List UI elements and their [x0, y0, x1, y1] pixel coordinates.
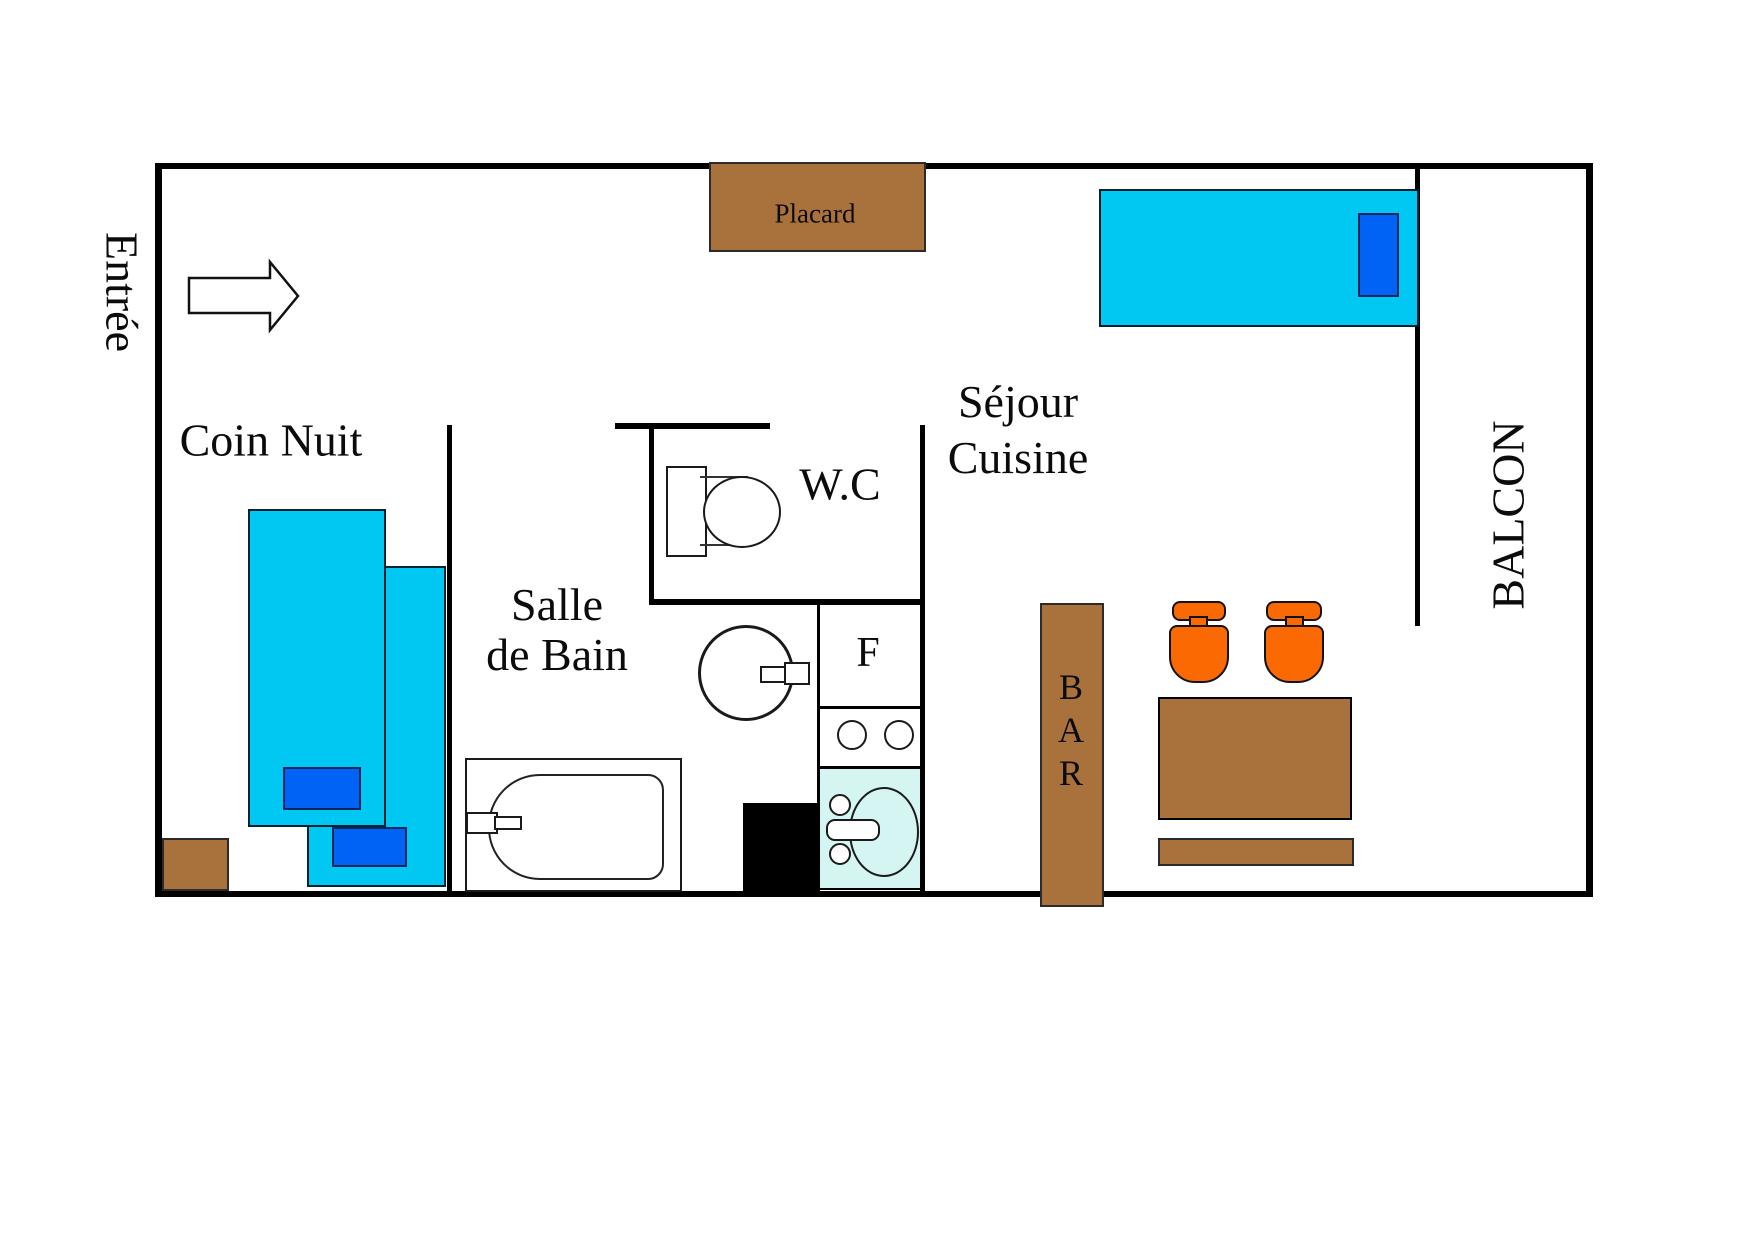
label-wc: W.C — [799, 458, 880, 511]
wall-wc-bottom — [649, 599, 925, 605]
sejour-bed-pillow — [1358, 213, 1399, 297]
floor-plan: BAR Entrée Coin Nuit Salle de Bain W.C S… — [0, 0, 1754, 1240]
kitchen-sink-faucet — [826, 819, 880, 841]
cooktop-burner-left — [837, 720, 867, 750]
cooktop-burner-right — [884, 720, 914, 750]
bar-label: BAR — [1052, 666, 1090, 795]
wall-wc-top — [615, 423, 770, 429]
label-salle-de-bain-line2: de Bain — [486, 630, 628, 680]
chair-1-seat — [1169, 625, 1229, 683]
label-entree: Entrée — [96, 232, 149, 352]
label-salle-de-bain-line1: Salle — [486, 580, 628, 630]
toilet-bowl — [703, 476, 781, 548]
label-balcon: BALCON — [1482, 420, 1535, 609]
bathtub-faucet-spout — [494, 816, 522, 830]
label-cuisine: Cuisine — [948, 430, 1089, 486]
wall-left — [155, 163, 162, 897]
label-placard: Placard — [775, 199, 856, 230]
bed-2-pillow — [332, 827, 407, 867]
bench-shelf — [1158, 838, 1354, 866]
wall-wc-right — [920, 425, 925, 891]
bathroom-sink-tap — [784, 662, 810, 685]
wall-right — [1586, 163, 1593, 897]
wall-coin-nuit-bathroom — [447, 425, 452, 891]
wall-kitchenette-fridge-divider — [817, 706, 923, 709]
wall-bottom — [155, 891, 1593, 897]
dining-table — [1158, 697, 1352, 820]
kitchen-sink-knob-top — [829, 794, 851, 816]
label-sejour: Séjour — [948, 374, 1089, 430]
water-heater-block — [743, 803, 817, 897]
label-coin-nuit: Coin Nuit — [180, 414, 363, 467]
entry-cabinet — [162, 838, 229, 891]
chair-2-seat — [1264, 625, 1324, 683]
wall-wc-left — [649, 425, 654, 603]
kitchen-sink-knob-bottom — [829, 843, 851, 865]
label-fridge: F — [856, 629, 879, 677]
bed-1-pillow — [283, 767, 361, 810]
